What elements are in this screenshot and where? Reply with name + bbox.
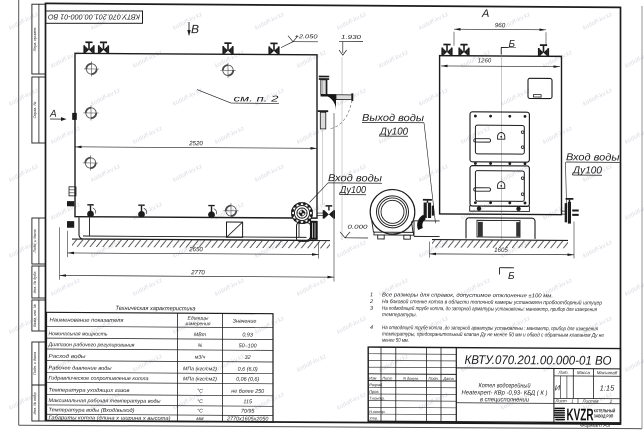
svg-text:°С: °С xyxy=(197,388,203,394)
svg-text:2650: 2650 xyxy=(188,246,203,253)
svg-text:1260: 1260 xyxy=(478,58,492,64)
svg-text:°С: °С xyxy=(197,399,203,405)
svg-text:температуры.: температуры. xyxy=(382,312,417,318)
svg-text:Лист: Лист xyxy=(554,398,567,403)
svg-text:в специсполнении: в специсполнении xyxy=(480,396,530,403)
svg-text:Изм: Изм xyxy=(369,375,377,380)
svg-text:Справ. №: Справ. № xyxy=(33,102,37,119)
svg-text:Котел водогрейный: Котел водогрейный xyxy=(479,382,531,389)
svg-text:0,06 (0,6): 0,06 (0,6) xyxy=(236,377,259,383)
svg-text:Техническая характеристика: Техническая характеристика xyxy=(115,306,196,312)
svg-text:4: 4 xyxy=(370,325,373,331)
svg-text:А: А xyxy=(481,8,489,20)
svg-text:А: А xyxy=(49,109,57,120)
svg-text:Габариты котла (длина х ширина: Габариты котла (длина х ширина х высота) xyxy=(49,415,171,422)
svg-text:Лист: Лист xyxy=(381,376,393,381)
svg-text:И: И xyxy=(555,383,561,392)
svg-text:мм: мм xyxy=(196,416,204,422)
svg-text:Взам. инв. №: Взам. инв. № xyxy=(33,304,37,327)
svg-text:КВТУ.070.201.00.000-01 ВО: КВТУ.070.201.00.000-01 ВО xyxy=(465,353,612,368)
svg-text:Подп. и дата: Подп. и дата xyxy=(33,352,37,375)
svg-text:Инв. № дубл.: Инв. № дубл. xyxy=(33,271,37,294)
svg-text:менее 50 мм.: менее 50 мм. xyxy=(382,338,409,344)
svg-text:В: В xyxy=(191,22,199,36)
svg-text:2770х1605х2050: 2770х1605х2050 xyxy=(226,416,268,422)
svg-text:Масса: Масса xyxy=(577,370,591,375)
svg-text:1605: 1605 xyxy=(494,247,508,254)
svg-text:1:15: 1:15 xyxy=(600,383,615,392)
svg-text:Инв. № подл.: Инв. № подл. xyxy=(33,392,37,415)
svg-text:не более 250: не более 250 xyxy=(231,389,264,395)
svg-text:Расход воды: Расход воды xyxy=(49,354,86,360)
svg-text:м3/ч: м3/ч xyxy=(195,355,206,361)
svg-text:Утв.: Утв. xyxy=(369,416,378,421)
svg-text:2520: 2520 xyxy=(188,140,203,147)
svg-text:Рабочее давление воды: Рабочее давление воды xyxy=(49,365,112,371)
svg-text:Б: Б xyxy=(509,39,516,50)
svg-text:°С: °С xyxy=(197,408,203,414)
svg-text:см. п. 2: см. п. 2 xyxy=(234,93,279,103)
svg-text:0,6 (6,0): 0,6 (6,0) xyxy=(238,367,258,373)
svg-text:Гидравлическое сопротивление к: Гидравлическое сопротивление котла xyxy=(49,376,149,383)
svg-text:N докум.: N докум. xyxy=(403,376,419,381)
svg-text:32: 32 xyxy=(245,355,251,361)
svg-text:KVZR: KVZR xyxy=(567,404,594,424)
svg-text:Т.контр.: Т.контр. xyxy=(369,396,385,401)
svg-text:960: 960 xyxy=(495,22,506,29)
svg-text:Температура уходящих газов: Температура уходящих газов xyxy=(49,388,130,394)
svg-text:Разраб.: Разраб. xyxy=(369,382,383,387)
svg-text:2: 2 xyxy=(609,399,613,404)
svg-text:+2.050: +2.050 xyxy=(295,34,319,40)
svg-text:Максимальная рабочая температу: Максимальная рабочая температура воды xyxy=(49,398,161,405)
svg-text:3: 3 xyxy=(370,306,373,312)
svg-text:Лит.: Лит. xyxy=(557,370,568,375)
svg-text:МПа (кгс/см2): МПа (кгс/см2) xyxy=(183,376,217,382)
svg-text:Подп. и дата: Подп. и дата xyxy=(33,229,37,252)
svg-text:МВт: МВт xyxy=(194,332,207,338)
svg-text:0,93: 0,93 xyxy=(242,332,252,338)
svg-text:КВТУ.070.201.00.000-01 ВО: КВТУ.070.201.00.000-01 ВО xyxy=(47,13,140,20)
svg-text:Температура воды (Вход/выход): Температура воды (Вход/выход) xyxy=(49,407,135,414)
svg-text:1.930: 1.930 xyxy=(341,35,362,41)
svg-text:температуры, предохранительный: температуры, предохранительный клапан Ду… xyxy=(382,331,604,339)
svg-text:70/95: 70/95 xyxy=(241,409,255,415)
svg-text:Масштаб: Масштаб xyxy=(597,370,618,375)
svg-text:%: % xyxy=(198,343,203,349)
svg-text:Н.контр.: Н.контр. xyxy=(369,409,385,414)
svg-text:Перв. примен.: Перв. примен. xyxy=(33,27,37,52)
svg-text:Диапазон рабочего регулировани: Диапазон рабочего регулирования xyxy=(47,342,134,349)
svg-text:2: 2 xyxy=(369,299,373,305)
svg-text:Листов: Листов xyxy=(582,399,600,404)
svg-text:Формат А3: Формат А3 xyxy=(580,423,610,429)
svg-text:1: 1 xyxy=(370,292,373,298)
svg-text:115: 115 xyxy=(243,399,253,405)
svg-text:МПа (кгс/см2): МПа (кгс/см2) xyxy=(183,366,217,372)
svg-text:Номинальная мощность: Номинальная мощность xyxy=(49,331,108,337)
svg-text:Значение: Значение xyxy=(233,319,257,325)
svg-text:Б: Б xyxy=(508,271,515,282)
svg-text:измерения: измерения xyxy=(185,321,210,327)
svg-text:Подп.: Подп. xyxy=(429,376,439,381)
svg-text:ЗАВОД РЭП: ЗАВОД РЭП xyxy=(594,413,614,418)
svg-text:50–100: 50–100 xyxy=(239,343,257,349)
svg-text:Наименование показателя: Наименование показателя xyxy=(50,318,124,324)
svg-text:Пров.: Пров. xyxy=(369,389,379,394)
svg-text:0.000: 0.000 xyxy=(348,225,369,231)
svg-text:2770: 2770 xyxy=(190,269,205,276)
svg-text:Дата: Дата xyxy=(442,376,454,381)
